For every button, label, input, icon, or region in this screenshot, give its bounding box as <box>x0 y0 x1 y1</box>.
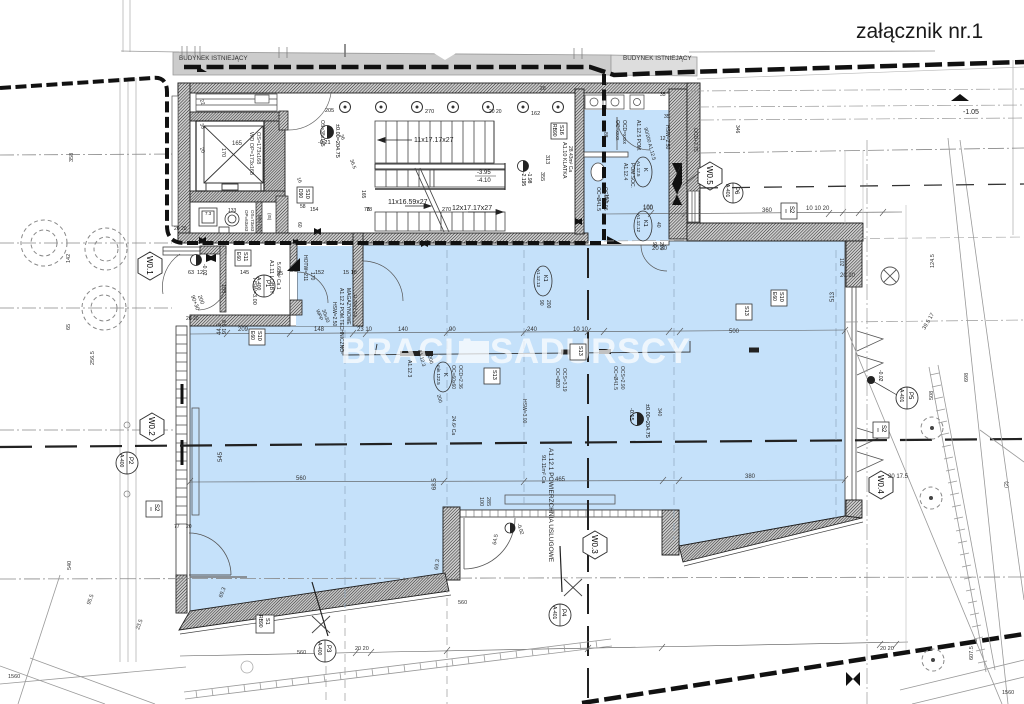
svg-text:11.75m² Ca: 11.75m² Ca <box>353 294 358 318</box>
svg-text:380: 380 <box>745 474 756 480</box>
svg-text:28.43m² Ca: 28.43m² Ca <box>567 146 573 172</box>
svg-text:A-400: A-400 <box>118 454 124 468</box>
svg-text:20 20: 20 20 <box>174 226 187 232</box>
svg-text:152: 152 <box>315 270 324 276</box>
svg-text:23 10: 23 10 <box>357 327 373 333</box>
svg-text:133: 133 <box>228 208 237 214</box>
svg-text:12: 12 <box>197 270 203 276</box>
svg-text:WD OP=173x168: WD OP=173x168 <box>248 132 254 175</box>
svg-text:148: 148 <box>314 327 325 333</box>
svg-text:OC=Ø41.5: OC=Ø41.5 <box>612 366 618 390</box>
svg-text:W0.2: W0.2 <box>147 417 156 436</box>
svg-text:A-401: A-401 <box>898 389 904 403</box>
svg-text:465: 465 <box>555 477 566 483</box>
svg-text:WM (IS): WM (IS) <box>257 215 262 232</box>
svg-text:77: 77 <box>174 524 180 530</box>
svg-text:A1.12.5 POM.: A1.12.5 POM. <box>635 120 641 151</box>
svg-text:SADURSCY: SADURSCY <box>490 332 690 371</box>
svg-text:88: 88 <box>602 132 608 138</box>
svg-text:340: 340 <box>656 408 662 417</box>
svg-text:MAGAZYNOWE: MAGAZYNOWE <box>345 288 351 325</box>
svg-text:360: 360 <box>762 208 773 214</box>
svg-text:S10: S10 <box>304 189 310 199</box>
svg-text:A1.12.3: A1.12.3 <box>406 360 412 377</box>
svg-text:S1: S1 <box>264 618 270 625</box>
svg-text:205: 205 <box>325 108 334 114</box>
svg-text:153: 153 <box>220 284 226 293</box>
svg-text:58: 58 <box>300 204 306 210</box>
svg-text:S10: S10 <box>778 292 784 302</box>
svg-text:540: 540 <box>67 561 73 570</box>
svg-text:508: 508 <box>929 391 935 400</box>
svg-text:20 20: 20 20 <box>840 273 856 279</box>
svg-text:12x17.17x27: 12x17.17x27 <box>452 205 492 212</box>
svg-text:K: K <box>442 373 448 377</box>
svg-text:OS=173x168: OS=173x168 <box>255 132 261 164</box>
svg-text:K1: K1 <box>542 275 548 282</box>
svg-text:OCS=3.19: OCS=3.19 <box>561 368 567 392</box>
svg-text:A1.12.4: A1.12.4 <box>622 163 628 180</box>
svg-text:HOTW=211: HOTW=211 <box>302 255 308 281</box>
svg-text:256.5: 256.5 <box>90 351 96 365</box>
svg-text:HSW=3.00: HSW=3.00 <box>521 399 527 424</box>
svg-text:560: 560 <box>458 600 467 606</box>
svg-text:S2: S2 <box>153 504 159 512</box>
svg-text:S10: S10 <box>256 331 262 341</box>
svg-text:(2): (2) <box>1004 481 1010 488</box>
svg-text:HSW=2.50: HSW=2.50 <box>331 302 337 327</box>
svg-text:(E): (E) <box>326 126 332 133</box>
svg-text:10 10 20: 10 10 20 <box>806 206 830 212</box>
svg-text:min.122.5: min.122.5 <box>436 365 441 385</box>
svg-text:RB90: RB90 <box>551 124 557 137</box>
svg-text:545: 545 <box>218 451 224 462</box>
svg-text:8.5 16: 8.5 16 <box>220 320 226 334</box>
svg-text:90: 90 <box>538 300 544 306</box>
svg-text:65: 65 <box>66 324 72 330</box>
svg-text:240: 240 <box>527 327 538 333</box>
svg-text:OCD=2.36: OCD=2.36 <box>457 365 463 389</box>
svg-text:180: 180 <box>603 194 609 203</box>
svg-text:560: 560 <box>297 650 306 656</box>
svg-text:68.5: 68.5 <box>432 478 438 490</box>
svg-text:OP=63x63: OP=63x63 <box>244 210 249 232</box>
svg-text:-3.95: -3.95 <box>477 170 491 176</box>
svg-text:K1: K1 <box>642 220 648 227</box>
svg-text:100: 100 <box>643 205 654 211</box>
svg-text:OC=Ø41.5: OC=Ø41.5 <box>595 187 601 211</box>
svg-text:A1.10 KLATKA: A1.10 KLATKA <box>561 142 567 179</box>
svg-text:607.5: 607.5 <box>969 646 975 660</box>
svg-text:102: 102 <box>838 258 844 267</box>
svg-text:-1.05: -1.05 <box>963 109 979 116</box>
svg-text:270: 270 <box>425 109 434 115</box>
svg-text:OS=38x165: OS=38x165 <box>319 120 325 147</box>
svg-text:200: 200 <box>658 242 664 251</box>
svg-text:S13: S13 <box>577 346 583 356</box>
svg-text:W0.4: W0.4 <box>876 475 885 494</box>
svg-text:78: 78 <box>364 207 370 213</box>
svg-text:OS=73x63: OS=73x63 <box>250 210 255 232</box>
svg-text:90: 90 <box>651 242 657 248</box>
svg-text:355: 355 <box>539 172 545 181</box>
svg-text:P4: P4 <box>560 609 566 617</box>
svg-text:E60: E60 <box>235 252 241 261</box>
svg-text:P3: P3 <box>325 645 331 653</box>
svg-text:A1.12.2 POM.TECHNICZNO-: A1.12.2 POM.TECHNICZNO- <box>338 288 344 354</box>
svg-text:35: 35 <box>660 92 666 98</box>
svg-text:S11: S11 <box>242 252 248 261</box>
svg-text:40: 40 <box>655 222 661 228</box>
svg-text:698: 698 <box>964 373 970 382</box>
svg-text:RB90: RB90 <box>257 615 263 628</box>
svg-text:A1.12.5: A1.12.5 <box>636 161 641 177</box>
svg-text:załącznik nr.1: załącznik nr.1 <box>856 20 983 43</box>
svg-text:E60: E60 <box>249 331 255 340</box>
svg-text:24.6² Ca: 24.6² Ca <box>450 416 456 435</box>
svg-text:20: 20 <box>540 86 546 92</box>
svg-text:313: 313 <box>544 155 550 164</box>
svg-text:20 17.5: 20 17.5 <box>888 474 909 480</box>
svg-text:-0.02: -0.02 <box>877 370 883 382</box>
svg-text:170: 170 <box>220 148 226 157</box>
svg-text:OCS=2.90: OCS=2.90 <box>619 366 625 390</box>
svg-text:20 20: 20 20 <box>355 646 369 652</box>
svg-text:100: 100 <box>478 497 484 506</box>
svg-text:OC=Ø20: OC=Ø20 <box>554 368 560 388</box>
svg-text:A-401: A-401 <box>724 184 730 198</box>
svg-text:358: 358 <box>69 153 75 162</box>
svg-text:S2: S2 <box>788 206 794 214</box>
svg-text:BUDYNEK ISTNIEJĄCY: BUDYNEK ISTNIEJĄCY <box>179 55 248 62</box>
svg-text:W0.3: W0.3 <box>590 535 599 554</box>
svg-text:142: 142 <box>66 254 72 263</box>
svg-text:1560: 1560 <box>1002 690 1014 696</box>
svg-text:162: 162 <box>531 111 540 117</box>
svg-text:A1.12.13: A1.12.13 <box>536 269 541 288</box>
svg-text:91.11m² Ca: 91.11m² Ca <box>540 455 546 484</box>
svg-text:-0.15: -0.15 <box>628 408 634 421</box>
svg-text:15 18: 15 18 <box>343 270 357 276</box>
svg-text:W0.1: W0.1 <box>145 256 154 275</box>
svg-text:S13: S13 <box>743 306 749 316</box>
svg-text:1560: 1560 <box>8 674 20 680</box>
svg-text:25: 25 <box>277 271 283 277</box>
svg-text:346: 346 <box>734 125 740 134</box>
svg-text:11x17.17x27: 11x17.17x27 <box>414 137 454 144</box>
svg-text:11x16.59x27: 11x16.59x27 <box>388 199 428 206</box>
svg-text:285: 285 <box>485 497 491 506</box>
svg-text:154: 154 <box>310 207 319 213</box>
svg-text:35: 35 <box>664 114 670 120</box>
svg-text:60: 60 <box>296 222 302 228</box>
svg-text:A1.12.12: A1.12.12 <box>636 214 641 233</box>
svg-text:-4.10: -4.10 <box>477 178 491 184</box>
svg-text:A-401: A-401 <box>551 606 557 620</box>
svg-text:S13: S13 <box>491 370 497 380</box>
svg-text:20 20: 20 20 <box>489 109 502 115</box>
svg-text:20 20: 20 20 <box>186 316 199 322</box>
svg-text:90: 90 <box>449 327 456 333</box>
svg-text:K: K <box>642 168 648 172</box>
svg-text:OCD=xxxx: OCD=xxxx <box>621 120 627 145</box>
svg-text:165: 165 <box>232 141 243 147</box>
svg-text:209: 209 <box>238 327 249 333</box>
svg-text:W0.5: W0.5 <box>705 166 714 185</box>
svg-text:HSW=3.00: HSW=3.00 <box>251 278 257 305</box>
svg-text:E60: E60 <box>771 292 777 301</box>
svg-text:270: 270 <box>442 207 451 213</box>
svg-text:20 20: 20 20 <box>880 646 894 652</box>
svg-text:145: 145 <box>240 270 249 276</box>
svg-text:500: 500 <box>729 329 740 335</box>
svg-text:S16: S16 <box>558 125 564 135</box>
svg-text:20: 20 <box>186 524 192 530</box>
svg-text:S2: S2 <box>880 425 886 433</box>
svg-text:63: 63 <box>188 270 194 276</box>
svg-text:A1.12.1 POWIERZCHNIA USLUGOWE: A1.12.1 POWIERZCHNIA USLUGOWE <box>547 448 554 563</box>
svg-text:BUDYNEK ISTNIEJĄCY: BUDYNEK ISTNIEJĄCY <box>623 55 692 62</box>
svg-text:P5: P5 <box>907 392 913 400</box>
svg-text:140: 140 <box>398 327 409 333</box>
svg-text:A-400: A-400 <box>316 642 322 656</box>
svg-text:165: 165 <box>360 190 366 199</box>
svg-text:513: 513 <box>830 291 836 302</box>
svg-text:A1.11 LOBBY: A1.11 LOBBY <box>268 260 274 294</box>
svg-text:±0.00=204.75: ±0.00=204.75 <box>644 404 650 438</box>
svg-text:±0.00=204.75: ±0.00=204.75 <box>334 124 340 158</box>
svg-text:12: 12 <box>660 136 666 142</box>
svg-text:OC=xxxx: OC=xxxx <box>614 120 620 141</box>
svg-text:560: 560 <box>296 476 307 482</box>
svg-text:OCD+2.75: OCD+2.75 <box>692 128 698 152</box>
svg-text:124.5: 124.5 <box>930 254 936 268</box>
svg-text:D90: D90 <box>297 189 303 198</box>
svg-text:200: 200 <box>545 300 551 309</box>
svg-text:(IS): (IS) <box>267 213 272 221</box>
svg-text:P2: P2 <box>127 457 133 465</box>
svg-text:-2.195: -2.195 <box>520 172 526 186</box>
svg-text:10 10: 10 10 <box>573 327 589 333</box>
svg-text:7.3: 7.3 <box>205 211 212 216</box>
